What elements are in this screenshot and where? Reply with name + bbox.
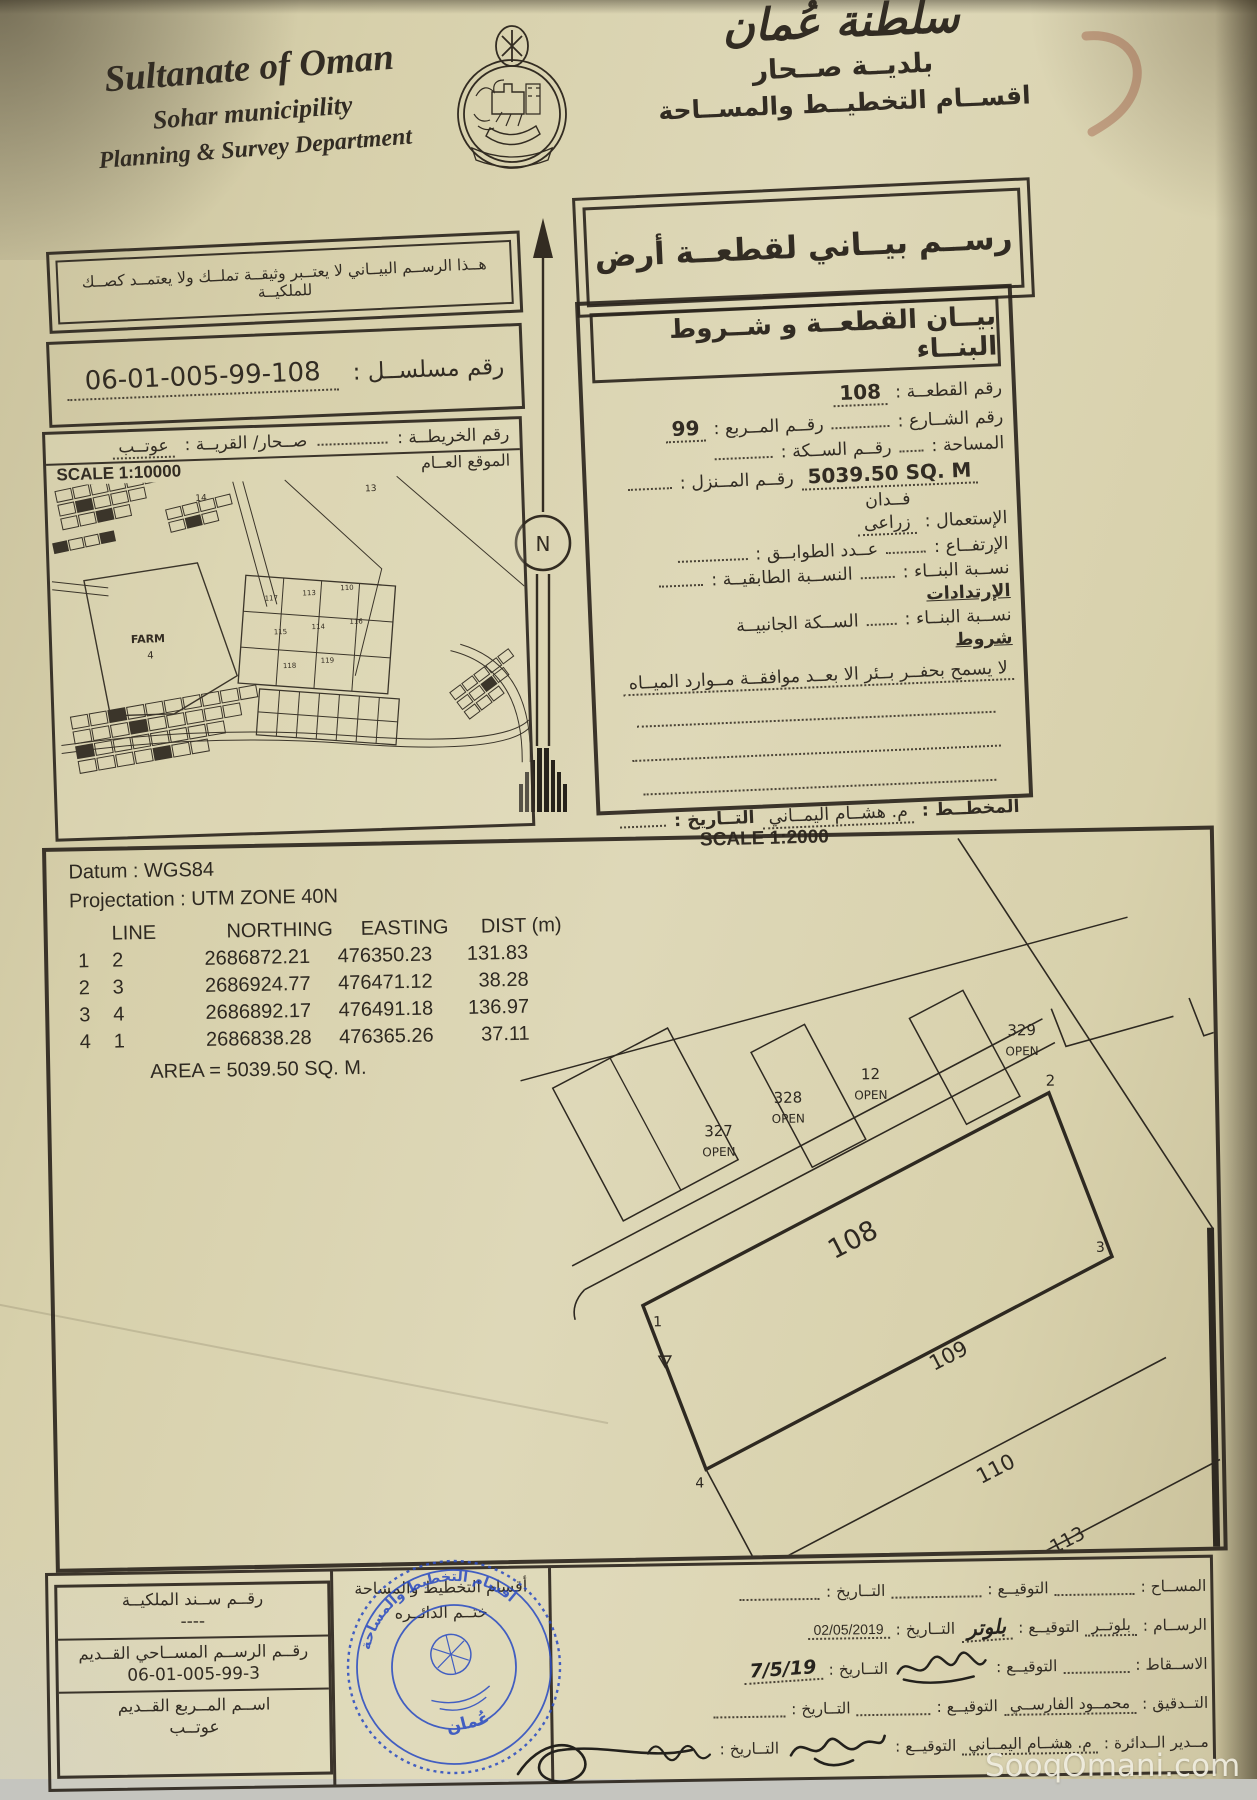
date-blank xyxy=(740,1583,820,1600)
area-label: المساحة : xyxy=(931,433,1005,456)
old-survey-value: 06-01-005-99-3 xyxy=(60,1663,326,1687)
floor-ratio-label: النســبة الطابقيــة : xyxy=(711,565,853,591)
plot-108-number: 108 xyxy=(823,1215,883,1266)
planner-date-blank xyxy=(620,811,667,829)
header-arabic: سلطنة عُمان بلديــة صــحار اقســام التخط… xyxy=(625,0,1060,127)
details-title: بيــان القطعــة و شــروط البنــاء xyxy=(589,296,1001,383)
use-label: الإستعمال : xyxy=(924,508,1008,531)
old-survey-cell: رقــم الرســم المســاحي القــديم 06-01-0… xyxy=(58,1637,329,1694)
map-parcel-13: 13 xyxy=(365,484,377,494)
ownership-deed-value: ---- xyxy=(60,1610,326,1634)
farm-number: 4 xyxy=(147,650,154,661)
projection-date-handwritten: 7/5/19 xyxy=(743,1655,823,1684)
farm-label: FARM xyxy=(131,632,166,646)
grid-label: 118 xyxy=(283,662,297,670)
general-location-label: الموقع العــام xyxy=(421,450,511,472)
map-number-label: رقم الخريطــة : xyxy=(397,425,510,449)
floor-ratio-blank xyxy=(659,570,704,588)
plot-details-panel: بيــان القطعــة و شــروط البنــاء رقم ال… xyxy=(575,284,1033,816)
parcel-328-open: OPEN xyxy=(772,1111,806,1126)
ownership-deed-label: رقــم ســند الملكيــة xyxy=(59,1588,325,1611)
grid-label: 119 xyxy=(321,656,335,664)
date-label: التــاريخ : xyxy=(826,1581,886,1600)
stamp-ring-text: أقسام التخطيط والمساحة xyxy=(344,1552,525,1655)
cadastral-map: FARM 4 14 13 117 113 110 115 114 116 118… xyxy=(47,470,532,826)
floors-blank xyxy=(677,544,748,563)
draftsman-label: الرســام : xyxy=(1143,1615,1207,1634)
date-label: التــاريخ : xyxy=(895,1619,955,1638)
parcel-327-number: 327 xyxy=(704,1122,733,1141)
build-ratio-blank xyxy=(860,562,895,579)
signature-blank xyxy=(891,1581,981,1598)
ownership-deed-cell: رقــم ســند الملكيــة ---- xyxy=(57,1584,328,1641)
signature-label: التوقيــع : xyxy=(895,1736,957,1755)
area-blank xyxy=(899,436,924,453)
map-number-blank xyxy=(317,428,387,446)
plot-sketch: 327 OPEN 328 OPEN 12 OPEN 329 OPEN 108 1… xyxy=(46,830,1224,1569)
corner-1-label: 1 xyxy=(653,1314,662,1330)
serial-number-box: رقم مسلســل : 06-01-005-99-108 xyxy=(46,323,525,428)
checker-date-blank xyxy=(713,1701,785,1718)
north-label: N xyxy=(536,532,551,556)
signature-label: التوقيــع : xyxy=(936,1697,998,1716)
house-label: رقــم المــنزل : xyxy=(679,469,794,494)
street-label: رقم الشــارع : xyxy=(897,407,1004,431)
watermark: SooqOmani.com xyxy=(985,1748,1240,1784)
parcel-328-number: 328 xyxy=(773,1088,802,1107)
grid-label: 116 xyxy=(349,617,363,625)
lane-label: رقــم الســكة : xyxy=(780,438,892,463)
svg-text:أقسام التخطيط والمساحة: أقسام التخطيط والمساحة xyxy=(344,1552,525,1655)
planner-name: م. هشــام اليمــاني xyxy=(762,801,914,829)
surveyor-blank xyxy=(1054,1578,1134,1595)
draftsman-value: بلوتــر xyxy=(1085,1615,1137,1636)
parcel-327-open: OPEN xyxy=(702,1145,736,1160)
checker-label: التــدقيق : xyxy=(1142,1693,1208,1712)
map-parcel-14: 14 xyxy=(195,494,207,504)
signature-scribble-icon xyxy=(785,1727,890,1767)
setbacks-title: الإرتدادات xyxy=(926,581,1011,605)
disclaimer-text: هــذا الرســم البيــاني لا يعتــبر وثيقـ… xyxy=(55,240,513,325)
use-value: زراعى xyxy=(857,512,917,536)
ink-smudge xyxy=(1072,28,1152,138)
blank-line xyxy=(636,695,995,728)
square-label: رقــم المــربع : xyxy=(713,415,824,440)
area-unit: فــدان xyxy=(865,489,911,511)
date-label: التــاريخ : xyxy=(719,1739,779,1758)
house-blank xyxy=(627,473,672,491)
location-map-box: رقم الخريطــة : صــحار/ القريــة : عوتــ… xyxy=(42,416,535,842)
condition-text: لا يسمح بحفــر بــئر الا بعــد موافقــة … xyxy=(622,658,1014,696)
date-label: التــاريخ : xyxy=(791,1699,851,1718)
height-label: الإرتفــاع : xyxy=(934,534,1009,557)
survey-drawing-box: Datum : WGS84 Projectation : UTM ZONE 40… xyxy=(42,826,1228,1573)
sohar-municipality-emblem-icon xyxy=(452,22,572,174)
village-value: عوتــب xyxy=(112,436,175,460)
side-lane-label: الســكة الجانبيــة xyxy=(736,611,859,636)
date-label: التــاريخ : xyxy=(828,1659,888,1678)
signature-scribble-icon xyxy=(894,1650,991,1686)
old-square-cell: اســم المــربع القــديم عوتــب xyxy=(59,1690,330,1745)
old-record-block: رقــم ســند الملكيــة ---- رقــم الرســم… xyxy=(54,1581,333,1779)
handwriting-scribble-icon xyxy=(510,1732,700,1794)
draftsman-signature: بلوتر xyxy=(960,1613,1013,1642)
grid-label: 117 xyxy=(265,594,279,602)
projection-label: الاســقاط : xyxy=(1135,1654,1208,1673)
square-value: 99 xyxy=(665,416,706,444)
signature-label: التوقيــع : xyxy=(987,1579,1049,1598)
serial-label: رقم مسلســل : xyxy=(352,354,505,386)
blank-line xyxy=(632,729,1001,762)
plot-no-label: رقم القطعــة : xyxy=(895,378,1003,402)
scanned-land-survey-document: Sultanate of Oman Sohar municipility Pla… xyxy=(0,0,1257,1800)
plot-no-value: 108 xyxy=(833,379,888,407)
signature-label: التوقيــع : xyxy=(1018,1617,1080,1636)
draftsman-date: 02/05/2019 xyxy=(807,1620,889,1639)
side-build-label: نســبة البنــاء : xyxy=(904,605,1012,629)
parcel-12-number: 12 xyxy=(861,1065,880,1083)
projection-blank xyxy=(1063,1656,1129,1673)
old-square-label: اســم المــربع القــديم xyxy=(61,1694,327,1717)
wilaya-village-label: صــحار/ القريــة : xyxy=(184,431,307,455)
parcel-329-open: OPEN xyxy=(1005,1044,1039,1059)
signature-label: التوقيــع : xyxy=(996,1657,1058,1676)
corner-3-label: 3 xyxy=(1096,1240,1105,1256)
old-square-value: عوتــب xyxy=(61,1716,327,1740)
grid-label: 115 xyxy=(274,628,288,636)
conditions-title: شروط xyxy=(955,628,1013,650)
serial-value: 06-01-005-99-108 xyxy=(66,356,339,401)
lane-blank xyxy=(714,442,773,460)
height-blank xyxy=(886,537,927,555)
parcel-329-number: 329 xyxy=(1007,1021,1036,1040)
parcel-12-open: OPEN xyxy=(854,1088,888,1103)
plot-109-number: 109 xyxy=(925,1336,972,1376)
grid-label: 114 xyxy=(311,623,325,631)
floors-label: عــدد الطوابــق : xyxy=(755,540,879,565)
checker-value: محمــود الفارســي xyxy=(1004,1693,1137,1715)
plot-113-number: 113 xyxy=(1046,1522,1088,1558)
stamp-center-text: عُمان xyxy=(444,1708,491,1738)
planner-label: المخطــط : xyxy=(921,797,1020,821)
corner-2-label: 2 xyxy=(1045,1072,1055,1090)
blank-line xyxy=(643,763,996,796)
corner-4-label: 4 xyxy=(695,1475,704,1491)
surveyor-label: المســاح : xyxy=(1140,1576,1206,1595)
build-ratio-label: نســبة البنــاء : xyxy=(902,558,1010,582)
grid-label: 113 xyxy=(302,589,316,597)
grid-label: 110 xyxy=(340,584,354,592)
old-survey-label: رقــم الرســم المســاحي القــديم xyxy=(60,1641,326,1664)
area-value: 5039.50 SQ. M xyxy=(801,457,978,490)
street-blank xyxy=(831,411,890,429)
checker-sig-blank xyxy=(856,1699,930,1716)
side-build-blank xyxy=(866,609,897,626)
